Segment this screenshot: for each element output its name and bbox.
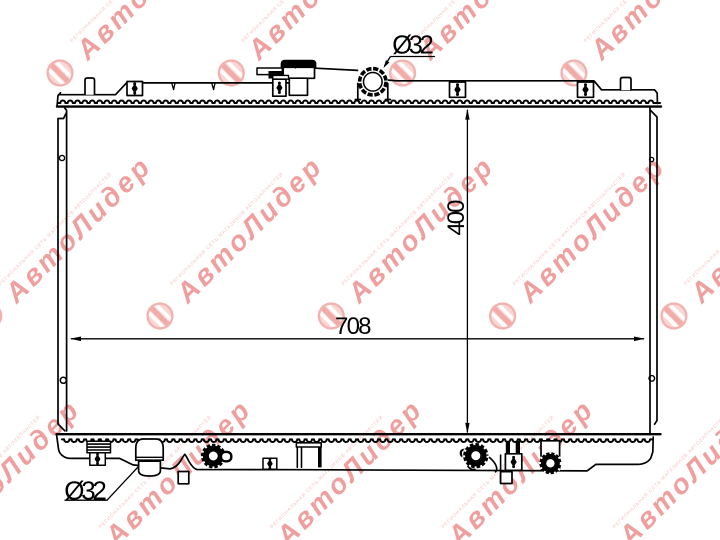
svg-text:Ø32: Ø32 bbox=[64, 476, 107, 506]
svg-text:Ø32: Ø32 bbox=[392, 31, 434, 59]
svg-text:400: 400 bbox=[443, 200, 470, 236]
svg-text:708: 708 bbox=[335, 313, 372, 340]
